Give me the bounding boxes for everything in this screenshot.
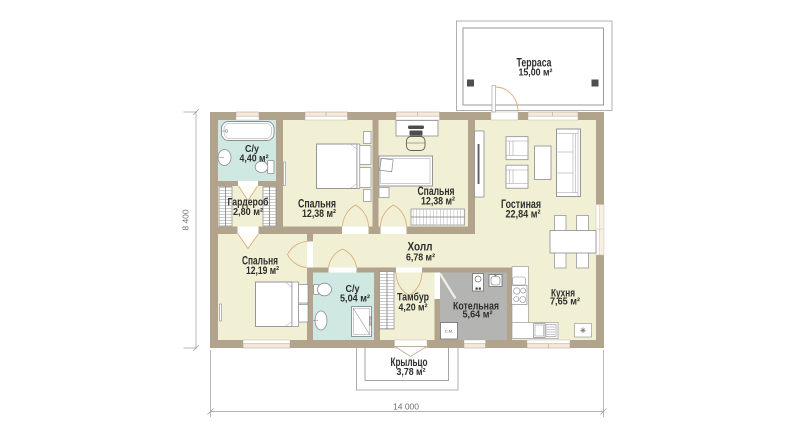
svg-text:5,04 м²: 5,04 м² [340, 293, 370, 305]
svg-text:3,78 м²: 3,78 м² [397, 366, 426, 378]
svg-text:15,00 м²: 15,00 м² [519, 67, 553, 79]
svg-text:12,19 м²: 12,19 м² [246, 265, 279, 277]
svg-text:4,20 м²: 4,20 м² [399, 302, 428, 314]
svg-text:2,80 м²: 2,80 м² [233, 206, 263, 218]
svg-text:5,64 м²: 5,64 м² [463, 309, 493, 321]
svg-text:12,38 м²: 12,38 м² [302, 208, 336, 220]
svg-text:7,65 м²: 7,65 м² [550, 296, 580, 308]
svg-text:4,40 м²: 4,40 м² [240, 153, 269, 165]
svg-text:14 000: 14 000 [393, 402, 419, 412]
svg-text:8 400: 8 400 [181, 209, 191, 231]
svg-text:22,84 м²: 22,84 м² [506, 209, 541, 221]
svg-text:12,38 м²: 12,38 м² [421, 196, 455, 208]
svg-text:90х90: 90х90 [368, 316, 372, 326]
svg-text:С.М.: С.М. [445, 329, 453, 334]
svg-text:6,78 м²: 6,78 м² [406, 252, 435, 264]
